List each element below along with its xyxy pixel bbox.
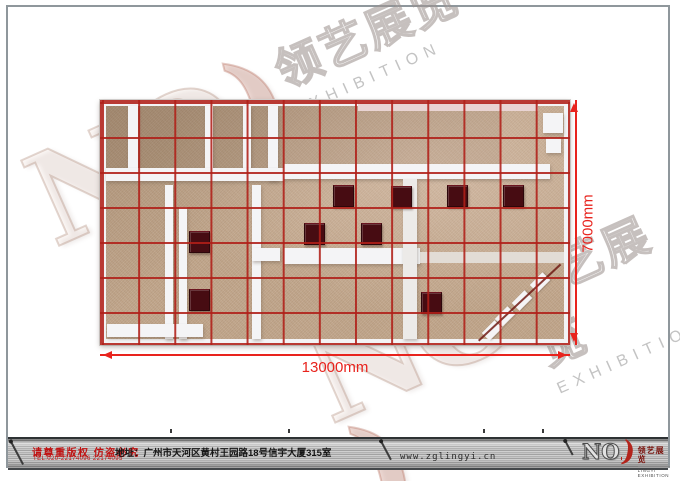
company-logo: NO ) 领艺展览 LINGYI EXHIBITION bbox=[582, 441, 670, 478]
grid-overlay bbox=[100, 100, 570, 345]
logo-swoosh: ) bbox=[621, 440, 638, 464]
divider-slash bbox=[564, 440, 573, 455]
fold-tick bbox=[542, 429, 544, 433]
title-block: 请尊重版权 仿盗必究 TEL:020-22174096 22174095 地址：… bbox=[8, 437, 668, 470]
height-dimension-label: 7000mm bbox=[580, 188, 597, 258]
telephone-text: TEL:020-22174096 22174095 bbox=[33, 456, 123, 462]
address-text: 地址：广州市天河区黄村王园路18号信宇大厦315室 bbox=[115, 445, 331, 459]
logo-english-text: LINGYI EXHIBITION bbox=[638, 466, 671, 478]
logo-chinese-text: 领艺展览 bbox=[638, 447, 671, 465]
fold-tick bbox=[483, 429, 485, 433]
floor-plan bbox=[100, 100, 570, 345]
divider-slash bbox=[380, 441, 392, 460]
fold-tick bbox=[288, 429, 290, 433]
width-dimension-line: 13000mm bbox=[100, 354, 570, 356]
divider-slash bbox=[10, 441, 24, 465]
height-dimension-line: 7000mm bbox=[575, 100, 577, 345]
drawing-page: NO) 领艺展览 EXHIBITION NO) 领艺展览 EXHIBITION bbox=[0, 0, 680, 481]
logo-letters: NO bbox=[582, 441, 620, 462]
fold-tick bbox=[170, 429, 172, 433]
website-text: www.zglingyi.cn bbox=[400, 452, 496, 462]
width-dimension-label: 13000mm bbox=[302, 359, 369, 376]
